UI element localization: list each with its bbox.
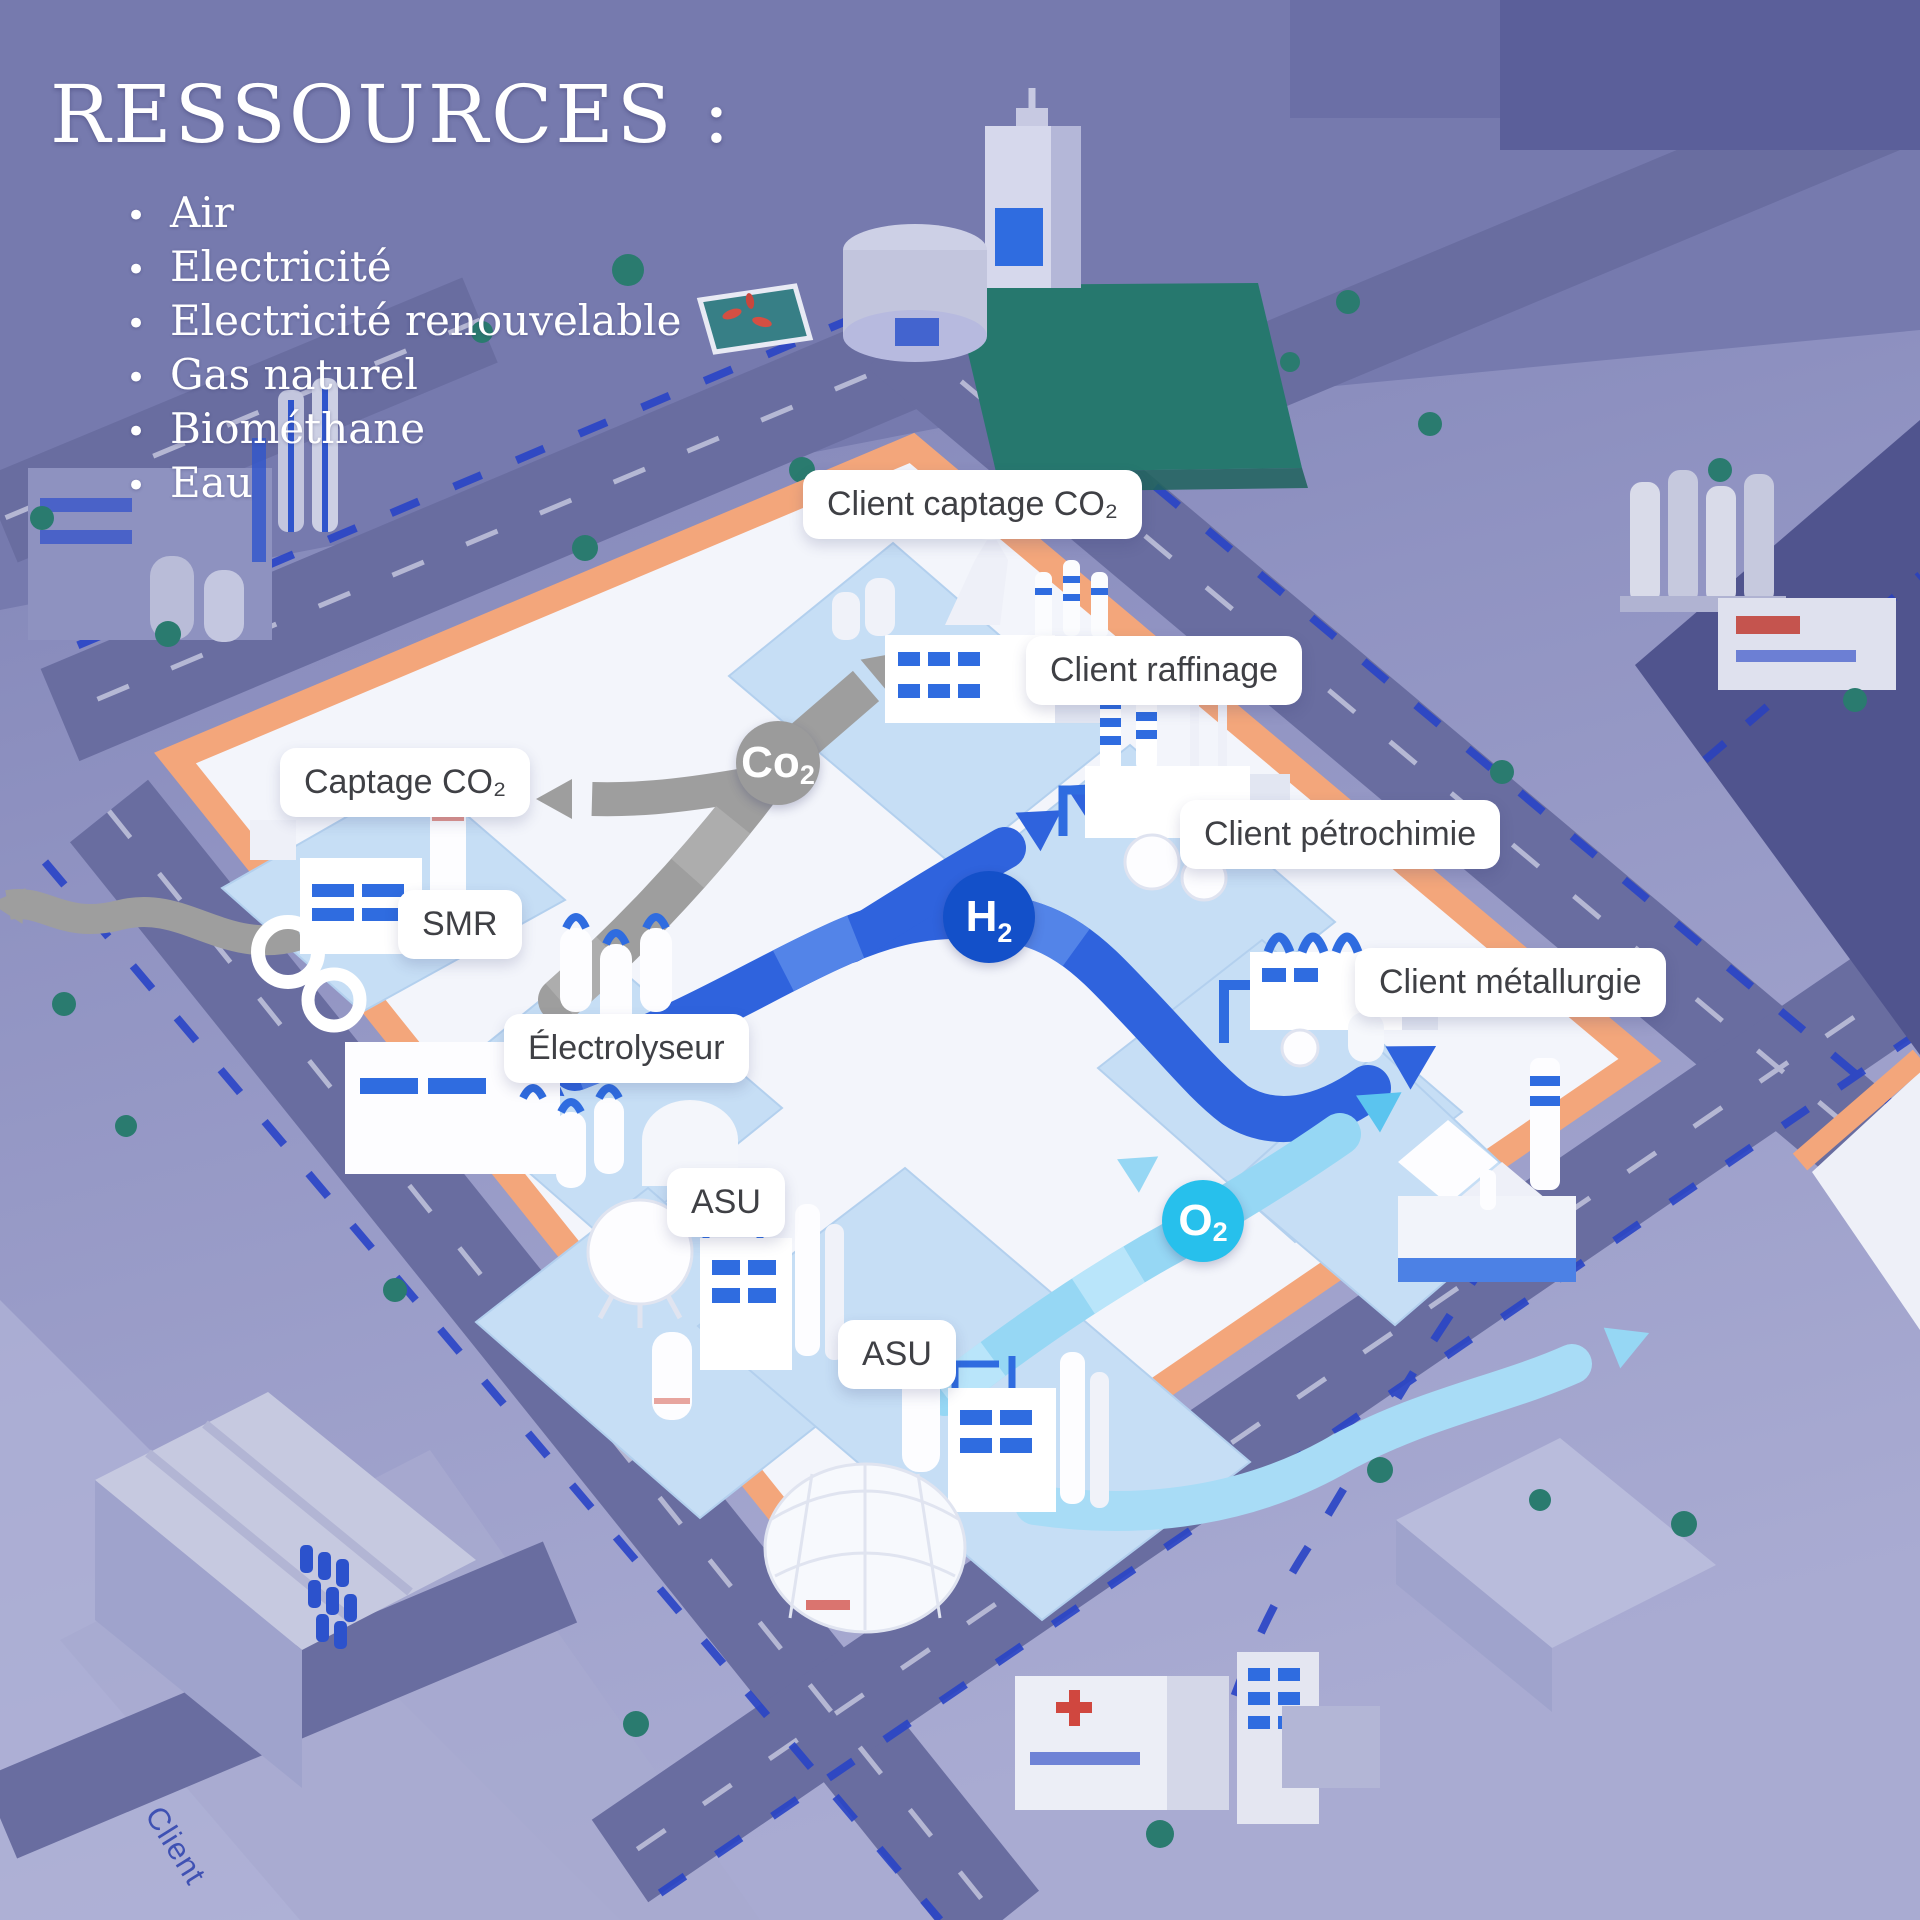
label-client-captage-co2: Client captage CO₂ [803,470,1142,539]
park [952,283,1302,472]
dome-storage [765,1464,965,1632]
label-asu-north: ASU [667,1168,785,1237]
page-title: RESSOURCES : [50,68,733,161]
label-smr: SMR [398,890,522,959]
h2-subscript: 2 [997,918,1012,949]
o2-badge: O2 [1162,1180,1244,1262]
resource-item-biomethane: Biométhane [108,402,681,456]
co2-badge: Co2 [736,721,820,805]
resource-item-air: Air [108,186,681,240]
o2-symbol: O [1178,1196,1212,1246]
resources-list: Air Electricité Electricité renouvelable… [108,186,681,510]
resource-item-electricite-renouvelable: Electricité renouvelable [108,294,681,348]
label-client-petrochimie: Client pétrochimie [1180,800,1500,869]
infographic-stage: RESSOURCES : Air Electricité Electricité… [0,0,1920,1920]
resource-item-electricite: Electricité [108,240,681,294]
koi-pond [700,286,810,352]
h2-symbol: H [966,892,998,942]
label-captage-co2: Captage CO₂ [280,748,530,817]
resource-item-eau: Eau [108,456,681,510]
label-asu-south: ASU [838,1320,956,1389]
co2-symbol: Co [741,738,800,788]
label-client-raffinage: Client raffinage [1026,636,1302,705]
h2-badge: H2 [943,871,1035,963]
label-client-metallurgie: Client métallurgie [1355,948,1666,1017]
o2-subscript: 2 [1213,1217,1228,1248]
co2-subscript: 2 [800,760,815,791]
label-electrolyseur: Électrolyseur [504,1014,749,1083]
resource-item-gas-naturel: Gas naturel [108,348,681,402]
